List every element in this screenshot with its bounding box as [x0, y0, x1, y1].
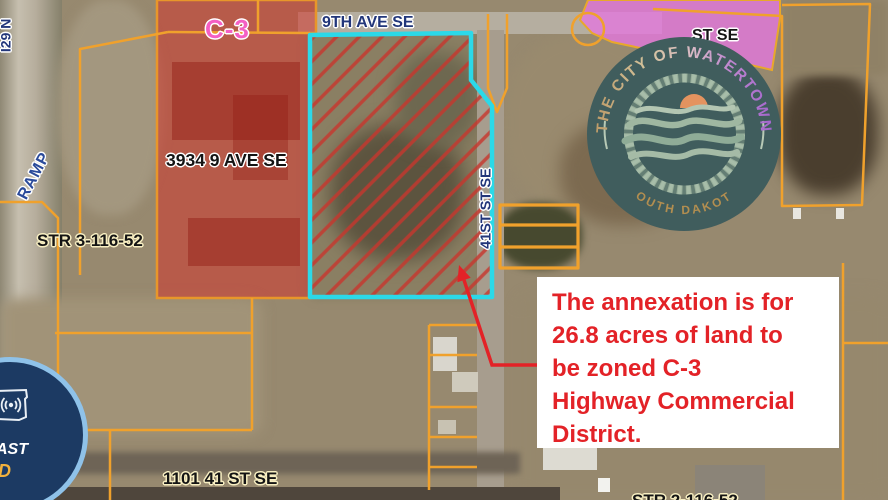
badge-text-line2: D: [0, 461, 11, 482]
annotation-line: The annexation is for: [552, 286, 839, 319]
annotation-box: The annexation is for 26.8 acres of land…: [537, 277, 839, 448]
address-1101-label: 1101 41 ST SE: [163, 470, 277, 488]
red-zone-building: [188, 218, 300, 266]
interstate-label: I29 N: [0, 5, 13, 65]
south-dakota-icon: [0, 386, 34, 426]
watertown-logo: THE CITY OF WATERTOWN SOUTH DAKOTA: [585, 35, 783, 233]
red-zone-group: [157, 0, 316, 298]
zone-c3-label: C-3: [205, 16, 250, 43]
annexation-map: I29 N RAMP C-3 9TH AVE SE 3934 9 AVE SE …: [0, 0, 888, 500]
badge-text-line1: AST: [0, 441, 28, 459]
section-str2-label: STR 2-116-52: [632, 492, 738, 500]
street-41st-label: 41ST ST SE: [479, 154, 494, 264]
address-3934-label: 3934 9 AVE SE: [166, 151, 287, 169]
annotation-line: Highway Commercial: [552, 385, 839, 418]
section-str3-label: STR 3-116-52: [37, 232, 143, 250]
annotation-line: be zoned C-3: [552, 352, 839, 385]
annexation-area: [310, 33, 492, 297]
logo-disc: [587, 37, 781, 231]
street-9th-ave-label: 9TH AVE SE: [322, 15, 414, 32]
annotation-line: District.: [552, 418, 839, 451]
annotation-line: 26.8 acres of land to: [552, 319, 839, 352]
